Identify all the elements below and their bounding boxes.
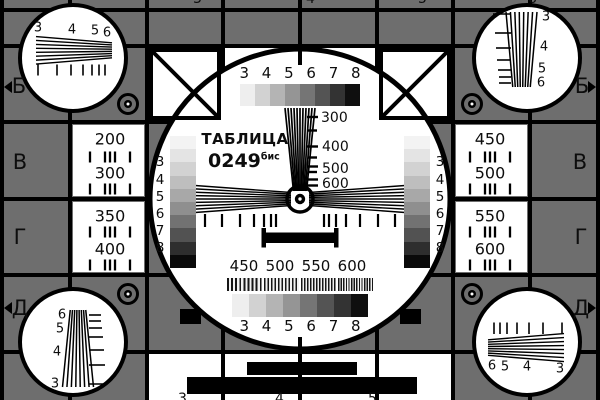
corner-digit: 3 [51,377,59,392]
corner-digit: 4 [68,23,76,38]
corner-digit: 5 [501,360,509,375]
row-label-b-left: Б [12,74,26,98]
strip-digit: 3 [156,154,165,170]
row-label-d-left: Д [12,296,28,320]
burst-label: 500 [266,257,295,275]
test-card: Б Б В В Г Г Д Д 200 300 350 400 450 500 … [0,0,600,400]
corner-digit: 4 [523,360,531,375]
row-label-v-right: В [573,150,587,174]
strip-digit: 4 [156,172,165,188]
burst-segment [301,278,336,291]
strip-digit: 6 [156,206,165,222]
freq-value: 350 [95,207,126,226]
card-number-suffix: бис [261,152,280,163]
strip-digit: 3 [436,154,445,170]
grayscale-bar-top [240,84,360,106]
corner-digit: 6 [58,308,66,323]
partial-digit-bottom: 5 [366,392,380,400]
strip-digit: 6 [436,206,445,222]
target-marker-icon [119,95,138,114]
burst-frequency-bar [227,278,373,291]
corner-digit: 6 [537,76,545,91]
row-label-g-right: Г [575,225,588,249]
corner-digit: 4 [53,345,61,360]
card-number-value: 0249 [208,150,261,172]
target-marker-icon [463,285,482,304]
strip-digit: 7 [156,223,165,239]
target-marker-icon [119,285,138,304]
wedge-label: 400 [322,139,349,155]
freq-value: 550 [475,207,506,226]
test-card-graphics [0,0,600,400]
grayscale-strip-left [170,136,196,268]
freq-value: 450 [475,130,506,149]
corner-digit: 4 [540,40,548,55]
partial-digit-top: 5 [416,0,430,8]
partial-digit-bottom: 4 [273,392,287,400]
freq-value: 400 [95,240,126,259]
strip-digit: 5 [436,189,445,205]
grayscale-strip-right [404,136,430,268]
row-label-v-left: В [13,150,27,174]
strip-digit: 5 [156,189,165,205]
corner-digit: 5 [56,322,64,337]
arrow-left-icon [4,302,12,314]
partial-digit-bottom: 3 [176,392,190,400]
row-label-d-right: Д [573,296,589,320]
corner-digit: 3 [542,10,550,25]
corner-digit: 6 [488,359,496,374]
grayscale-digits-bottom: 3 4 5 6 7 8 [239,317,364,335]
grayscale-bar-bottom [232,294,368,317]
card-title: ТАБЛИЦА [201,130,288,148]
corner-digit: 3 [556,362,564,377]
freq-value: 200 [95,130,126,149]
burst-label: 600 [338,257,367,275]
partial-digit-top: 4 [304,0,318,8]
burst-segment [338,278,373,291]
burst-segment [227,278,262,291]
partial-digit-top: 3 [191,0,205,8]
strip-digit: 7 [436,223,445,239]
strip-digit: 8 [436,240,445,256]
target-marker-icon [463,95,482,114]
wedge-label: 600 [322,176,349,192]
row-label-b-right: Б [575,74,589,98]
corner-digit: 5 [538,62,546,77]
strip-digit: 4 [436,172,445,188]
row-label-g-left: Г [14,225,27,249]
burst-segment [264,278,299,291]
corner-digit: 5 [91,24,99,39]
corner-digit: 3 [34,21,42,36]
freq-value: 600 [475,240,506,259]
corner-digit: 6 [103,26,111,41]
freq-value: 500 [475,164,506,183]
freq-value: 300 [95,164,126,183]
burst-label: 550 [302,257,331,275]
partial-digit-top: 6 [526,0,540,8]
grayscale-digits-top: 3 4 5 6 7 8 [239,64,364,82]
strip-digit: 8 [156,240,165,256]
wedge-label: 300 [321,110,348,126]
wedge-label: 500 [322,161,349,177]
burst-label: 450 [230,257,259,275]
card-number: 0249бис [208,150,280,172]
